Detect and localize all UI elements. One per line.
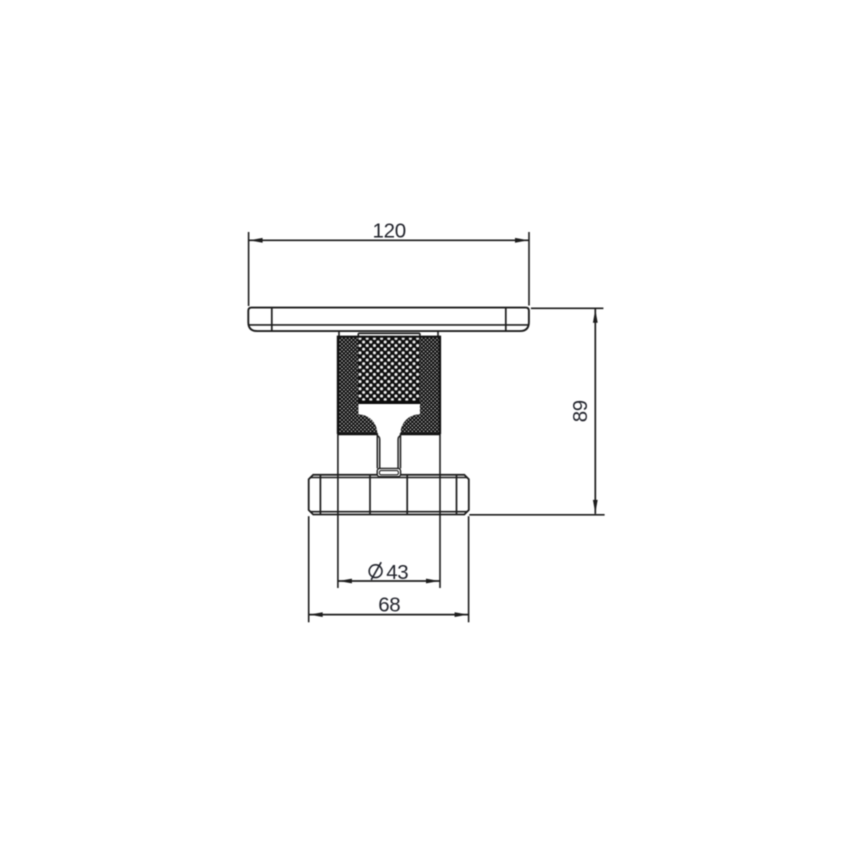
svg-text:89: 89 xyxy=(569,400,592,422)
svg-text:68: 68 xyxy=(378,594,400,617)
svg-text:43: 43 xyxy=(386,561,408,584)
svg-text:120: 120 xyxy=(373,219,406,242)
